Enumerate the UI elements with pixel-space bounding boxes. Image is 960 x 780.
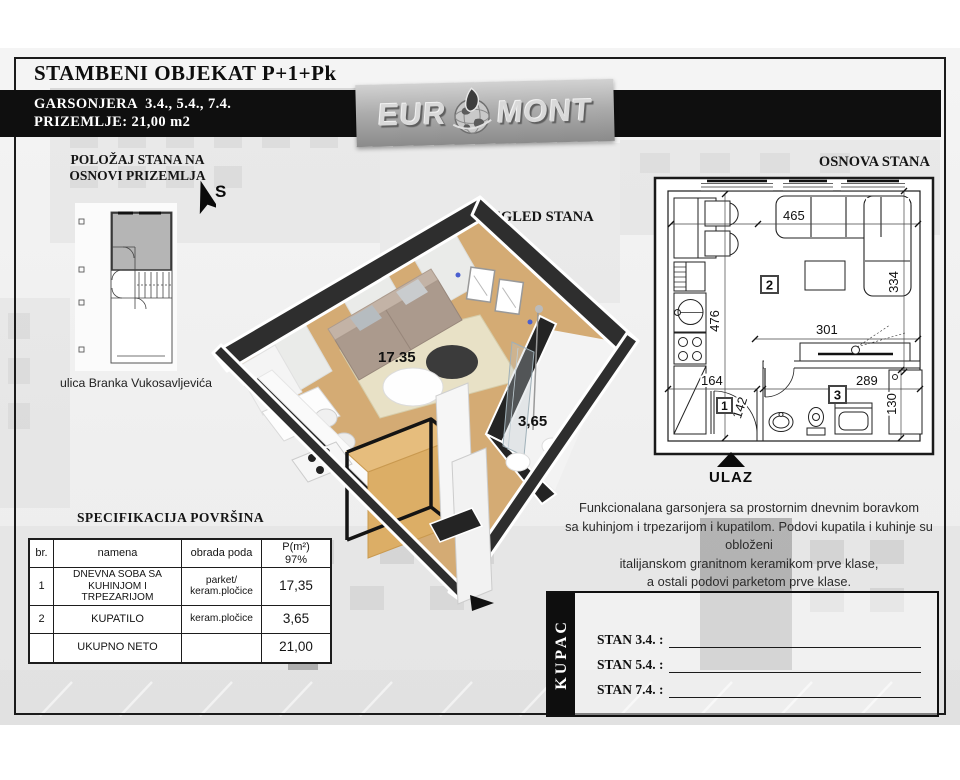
room-living-number: 2 bbox=[766, 278, 773, 293]
spec-table-title: SPECIFIKACIJA POVRŠINA bbox=[28, 510, 313, 526]
header-area-line1: P(m²) bbox=[264, 541, 328, 554]
wall-sconce-icon bbox=[456, 273, 461, 278]
row1-num: 1 bbox=[29, 568, 54, 606]
header-name: namena bbox=[54, 539, 182, 568]
row1-floor: parket/ keram.pločice bbox=[182, 568, 262, 606]
room-bath-number: 3 bbox=[834, 388, 841, 403]
table-row: 2 KUPATILO keram.pločice 3,65 bbox=[29, 605, 331, 633]
logo-text-right: MONT bbox=[495, 92, 593, 130]
header-floor: obrada poda bbox=[182, 539, 262, 568]
apartment-description: Funkcionalana garsonjera sa prostornim d… bbox=[560, 499, 938, 592]
highlighted-unit-area bbox=[112, 213, 171, 270]
bath-area-label-3d: 3,65 bbox=[518, 413, 547, 430]
row1-name: DNEVNA SOBA SA KUHINJOM I TRPEZARIJOM bbox=[54, 568, 182, 606]
wall-sconce-icon bbox=[528, 320, 533, 325]
document-body: STAMBENI OBJEKAT P+1+Pk GARSONJERA 3.4.,… bbox=[0, 48, 960, 725]
table-total-row: UKUPNO NETO 21,00 bbox=[29, 633, 331, 663]
row2-num: 2 bbox=[29, 605, 54, 633]
total-num-empty bbox=[29, 633, 54, 663]
signature-line[interactable] bbox=[669, 682, 921, 698]
description-line: sa kuhinjom i trpezarijom i kupatilom. P… bbox=[560, 518, 938, 555]
coffee-table-plan bbox=[805, 261, 845, 290]
signature-row-label: STAN 5.4. : bbox=[597, 657, 664, 673]
signature-row: STAN 5.4. : bbox=[597, 652, 921, 673]
signature-row-label: STAN 3.4. : bbox=[597, 632, 664, 648]
row2-name: KUPATILO bbox=[54, 605, 182, 633]
row2-floor: keram.pločice bbox=[182, 605, 262, 633]
dim-left: 476 bbox=[707, 310, 722, 332]
dim-bath-right: 130 bbox=[884, 393, 899, 415]
round-table bbox=[383, 368, 443, 406]
entrance-marker: ULAZ bbox=[688, 452, 774, 486]
signature-line[interactable] bbox=[669, 632, 921, 648]
euromont-logo: EUR MONT bbox=[355, 79, 614, 147]
floorplan-title: OSNOVA STANA bbox=[800, 154, 930, 171]
table-header-row: br. namena obrada poda P(m²) 97% bbox=[29, 539, 331, 568]
signature-rows: STAN 3.4. : STAN 5.4. : STAN 7.4. : bbox=[575, 593, 937, 715]
site-plan-thumbnail bbox=[73, 203, 179, 375]
dim-middle: 301 bbox=[816, 322, 838, 337]
total-floor-empty bbox=[182, 633, 262, 663]
dim-bottom-left: 164 bbox=[701, 373, 723, 388]
buyer-label-bar: KUPAC bbox=[548, 593, 575, 715]
logo-text-left: EUR bbox=[377, 96, 448, 134]
area-specification-table: br. namena obrada poda P(m²) 97% 1 DNEVN… bbox=[28, 538, 332, 664]
buyer-signature-box: KUPAC STAN 3.4. : STAN 5.4. : STAN 7.4. … bbox=[546, 591, 939, 717]
total-area: 21,00 bbox=[262, 633, 332, 663]
description-line: Funkcionalana garsonjera sa prostornim d… bbox=[560, 499, 938, 518]
floorplan-drawing: 465 476 334 301 164 142 289 130 2 1 3 bbox=[653, 176, 943, 461]
room-entrance-number: 1 bbox=[721, 399, 728, 413]
table-row: 1 DNEVNA SOBA SA KUHINJOM I TRPEZARIJOM … bbox=[29, 568, 331, 606]
unit-name: GARSONJERA 3.4., 5.4., 7.4. bbox=[34, 96, 231, 113]
toilet-3d bbox=[506, 453, 530, 471]
signature-line[interactable] bbox=[669, 657, 921, 673]
row1-area: 17,35 bbox=[262, 568, 332, 606]
signature-row: STAN 7.4. : bbox=[597, 677, 921, 698]
description-line: italijanskom granitnom keramikom prve kl… bbox=[560, 555, 938, 574]
header-area: P(m²) 97% bbox=[262, 539, 332, 568]
dim-right: 334 bbox=[886, 271, 901, 293]
flyer-page: STAMBENI OBJEKAT P+1+Pk GARSONJERA 3.4.,… bbox=[0, 0, 960, 780]
windows bbox=[701, 180, 905, 191]
direction-arrow-icon bbox=[470, 595, 494, 611]
buyer-label: KUPAC bbox=[553, 619, 571, 690]
signature-row: STAN 3.4. : bbox=[597, 627, 921, 648]
total-label: UKUPNO NETO bbox=[54, 633, 182, 663]
header-area-line2: 97% bbox=[264, 554, 328, 567]
dim-bath: 289 bbox=[856, 373, 878, 388]
signature-row-label: STAN 7.4. : bbox=[597, 682, 664, 698]
entrance-arrow-icon bbox=[717, 452, 745, 467]
row2-area: 3,65 bbox=[262, 605, 332, 633]
page-title: STAMBENI OBJEKAT P+1+Pk bbox=[34, 61, 337, 86]
header-num: br. bbox=[29, 539, 54, 568]
unit-floor-area: PRIZEMLJE: 21,00 m2 bbox=[34, 114, 190, 131]
entrance-label: ULAZ bbox=[688, 469, 774, 486]
dim-top: 465 bbox=[783, 208, 805, 223]
euromont-globe-icon bbox=[448, 86, 495, 141]
location-title-line1: POLOŽAJ STANA NA bbox=[55, 152, 220, 168]
description-line: a ostali podovi parketom prve klase. bbox=[560, 573, 938, 592]
living-area-label-3d: 17.35 bbox=[378, 349, 416, 366]
